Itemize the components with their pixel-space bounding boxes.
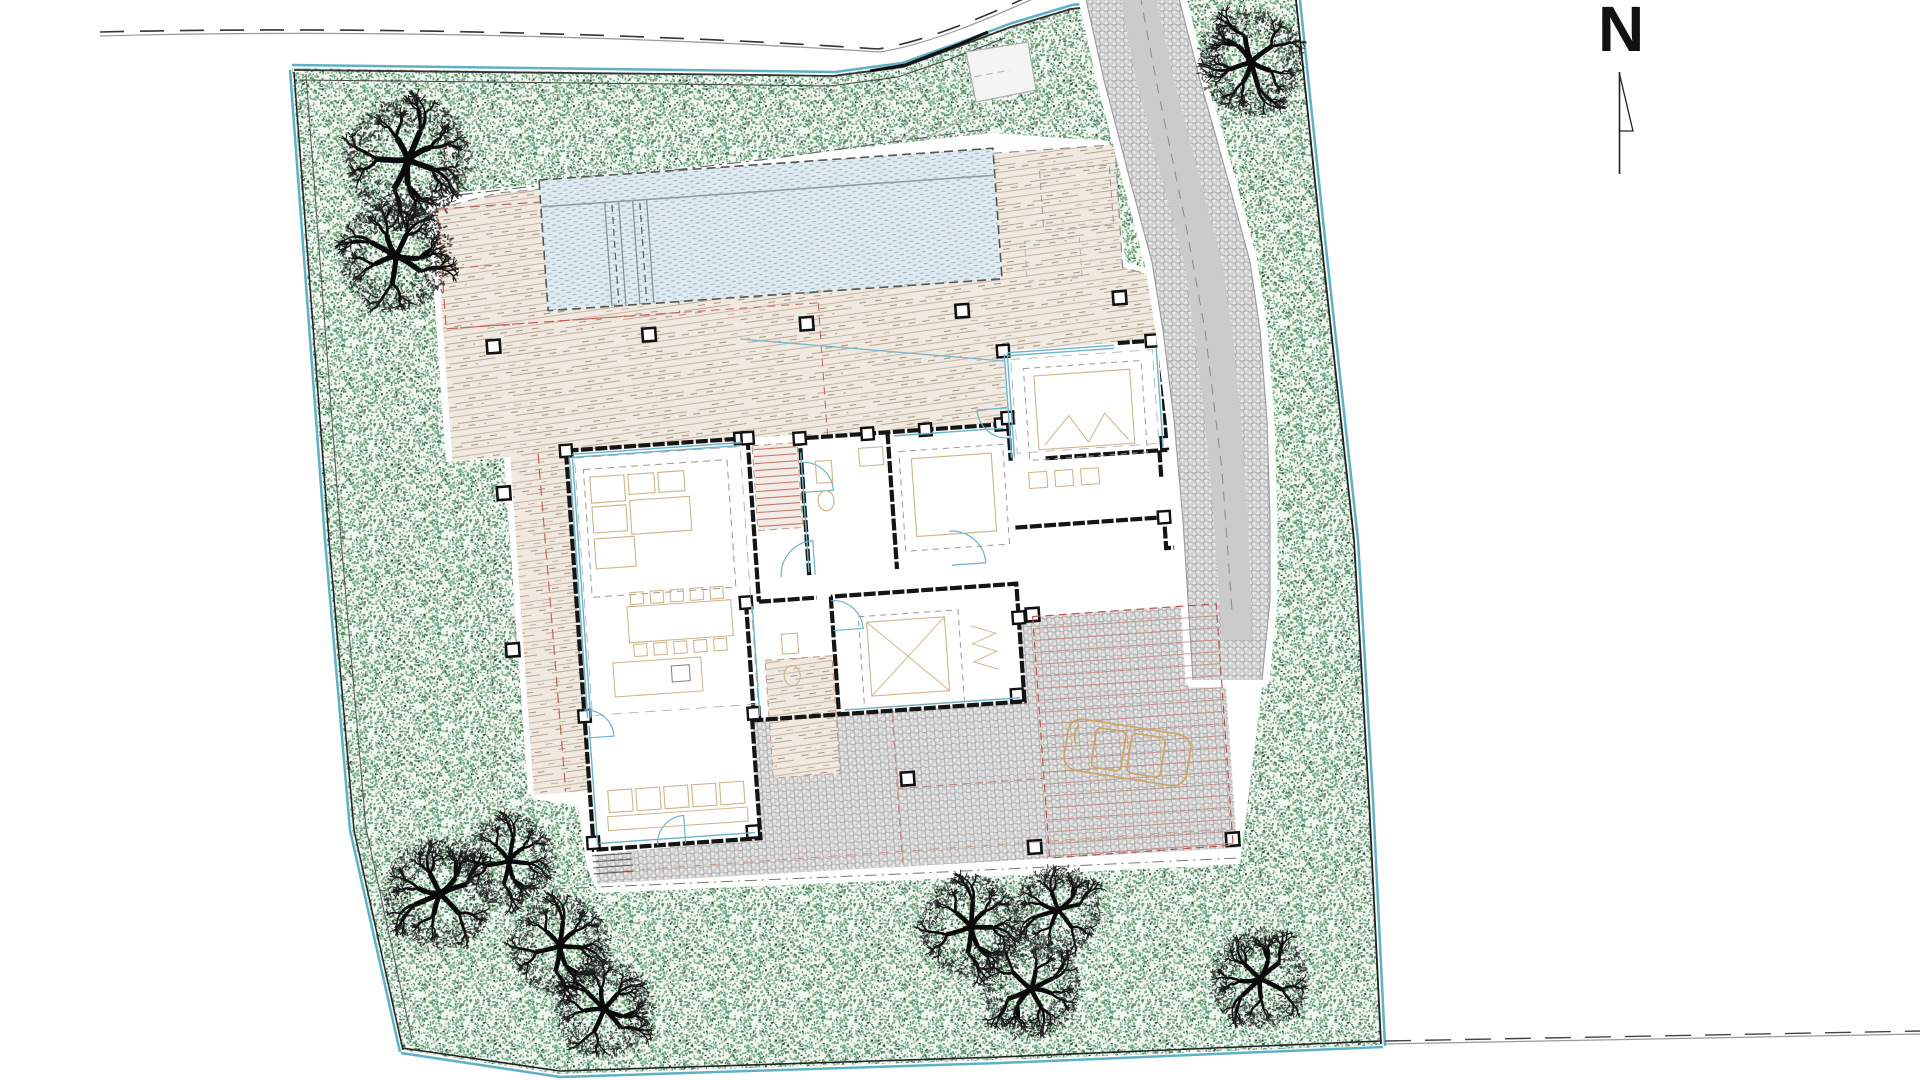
svg-text:N: N <box>1598 0 1644 65</box>
